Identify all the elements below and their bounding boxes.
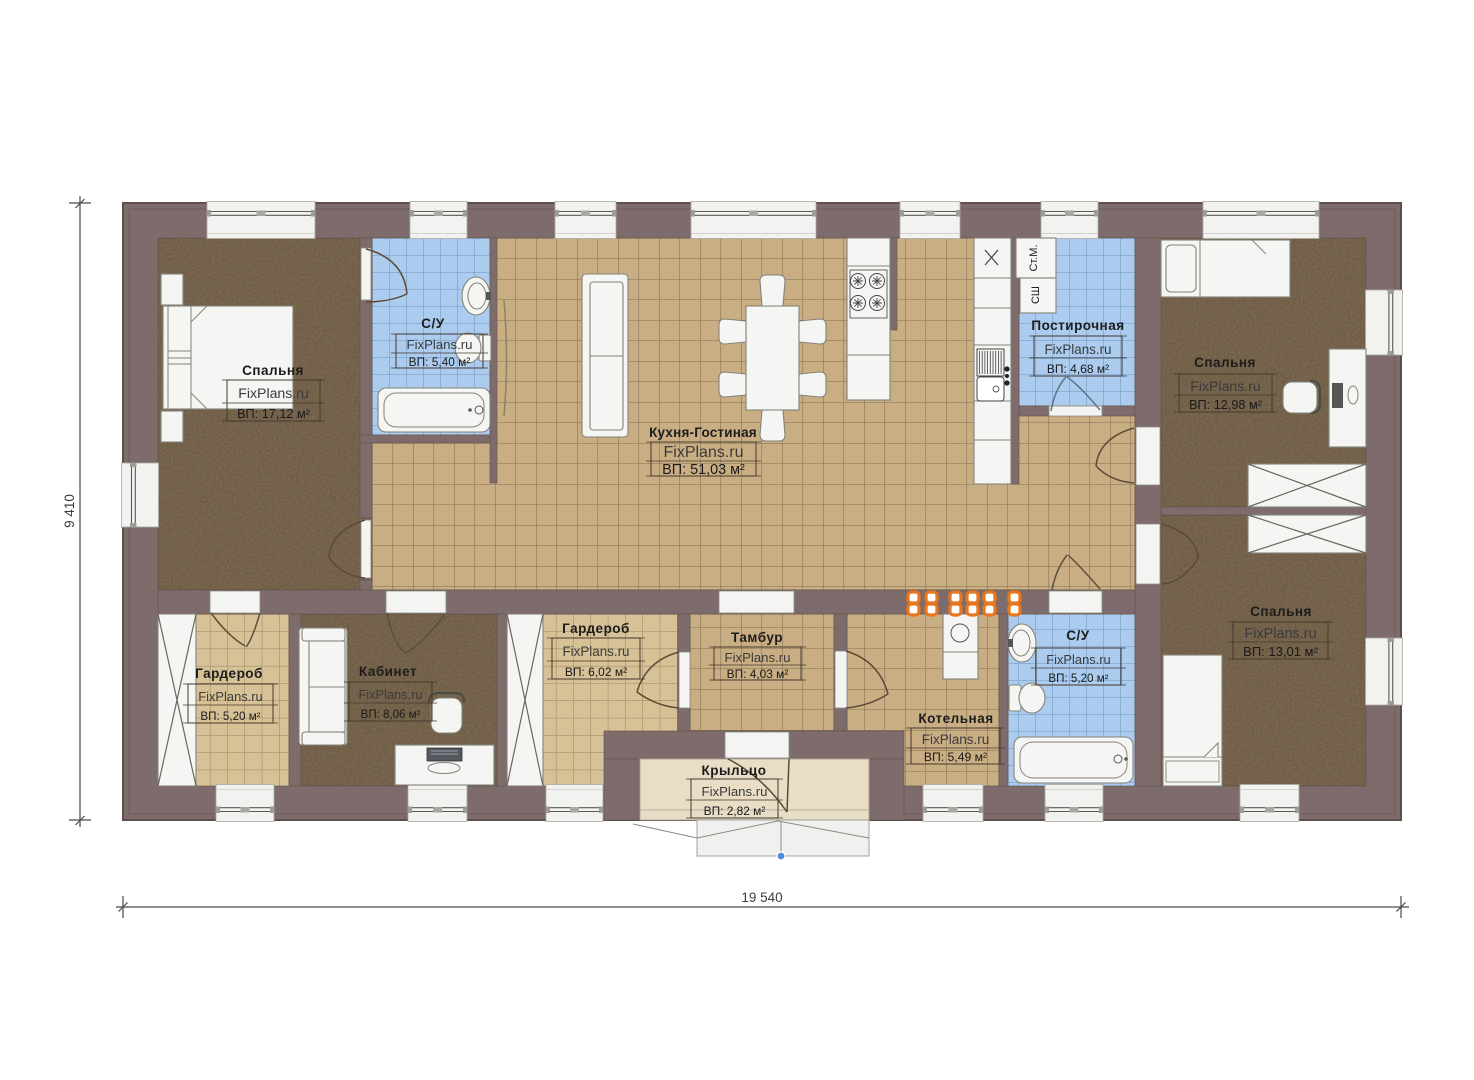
svg-text:Котельная: Котельная — [918, 711, 993, 726]
svg-text:FixPlans.ru: FixPlans.ru — [702, 784, 768, 799]
svg-text:FixPlans.ru: FixPlans.ru — [563, 644, 630, 659]
svg-text:Кабинет: Кабинет — [359, 664, 417, 679]
svg-text:СШ: СШ — [1030, 286, 1042, 304]
svg-text:FixPlans.ru: FixPlans.ru — [1245, 626, 1317, 642]
svg-text:Ст.М.: Ст.М. — [1028, 244, 1040, 271]
svg-text:Спальня: Спальня — [1250, 604, 1312, 619]
svg-text:ВП: 5,20 м²: ВП: 5,20 м² — [200, 710, 260, 723]
svg-text:FixPlans.ru: FixPlans.ru — [1190, 378, 1261, 394]
svg-text:Гардероб: Гардероб — [195, 666, 263, 681]
svg-text:FixPlans.ru: FixPlans.ru — [1046, 652, 1110, 667]
svg-text:FixPlans.ru: FixPlans.ru — [198, 689, 262, 704]
svg-text:ВП: 4,03 м²: ВП: 4,03 м² — [727, 667, 789, 681]
svg-text:ВП: 6,02 м²: ВП: 6,02 м² — [565, 665, 627, 679]
svg-text:ВП: 2,82 м²: ВП: 2,82 м² — [704, 804, 766, 818]
svg-text:Гардероб: Гардероб — [562, 621, 630, 636]
svg-text:FixPlans.ru: FixPlans.ru — [238, 385, 309, 401]
svg-text:ВП: 12,98 м²: ВП: 12,98 м² — [1189, 398, 1262, 412]
svg-text:FixPlans.ru: FixPlans.ru — [358, 687, 422, 702]
svg-text:ВП: 13,01 м²: ВП: 13,01 м² — [1243, 644, 1318, 659]
svg-text:ВП: 5,40 м²: ВП: 5,40 м² — [409, 355, 471, 369]
svg-text:Постирочная: Постирочная — [1031, 318, 1124, 333]
svg-text:Тамбур: Тамбур — [731, 630, 783, 645]
svg-text:Спальня: Спальня — [1194, 355, 1256, 370]
svg-text:С/У: С/У — [1066, 628, 1090, 643]
svg-text:FixPlans.ru: FixPlans.ru — [663, 444, 743, 461]
svg-text:FixPlans.ru: FixPlans.ru — [922, 732, 990, 747]
svg-text:FixPlans.ru: FixPlans.ru — [725, 650, 791, 665]
svg-text:ВП: 51,03 м²: ВП: 51,03 м² — [662, 462, 745, 478]
svg-text:FixPlans.ru: FixPlans.ru — [407, 337, 473, 352]
svg-text:ВП: 5,20 м²: ВП: 5,20 м² — [1048, 672, 1108, 685]
svg-text:9 410: 9 410 — [62, 494, 77, 528]
svg-text:ВП: 8,06 м²: ВП: 8,06 м² — [361, 709, 421, 721]
svg-text:19 540: 19 540 — [741, 890, 782, 905]
svg-text:FixPlans.ru: FixPlans.ru — [1045, 342, 1112, 357]
svg-text:Кухня-Гостиная: Кухня-Гостиная — [649, 425, 757, 440]
svg-text:ВП: 5,49 м²: ВП: 5,49 м² — [924, 750, 987, 764]
svg-text:Крыльцо: Крыльцо — [702, 763, 767, 778]
svg-text:С/У: С/У — [421, 316, 445, 331]
svg-text:ВП: 4,68 м²: ВП: 4,68 м² — [1047, 362, 1109, 376]
svg-text:ВП: 17,12 м²: ВП: 17,12 м² — [237, 407, 310, 421]
svg-text:Спальня: Спальня — [242, 363, 304, 378]
